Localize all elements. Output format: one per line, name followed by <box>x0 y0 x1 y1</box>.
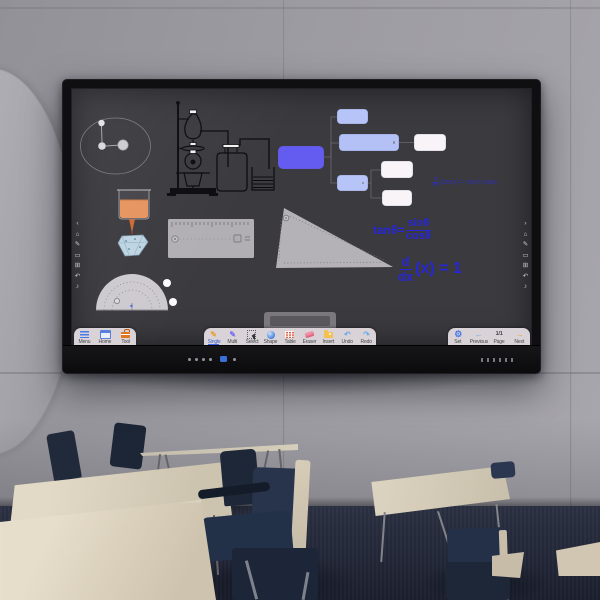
dock-item-page[interactable]: 1/1 Page <box>489 329 510 345</box>
dock-item-set[interactable]: ⚙ Set <box>448 329 469 345</box>
usb-port-icon <box>220 356 227 362</box>
mindmap-node-blue[interactable] <box>337 109 368 124</box>
tan-identity-formula: tanθ= sinθ cosθ <box>373 218 431 242</box>
tv-bottom-bezel <box>63 345 540 373</box>
right-side-toolbar: › ⌂ ✎ ▭ ⊞ ↶ ♪ <box>520 221 531 291</box>
page-indicator: 1/1 <box>496 331 503 339</box>
beaker-drawing <box>117 190 151 256</box>
bezel-port <box>481 358 483 362</box>
atom-diagram <box>81 118 151 174</box>
mindmap-node-blue[interactable] <box>339 134 399 151</box>
toolbar-label: Shape <box>264 339 278 345</box>
dock-label: Menu <box>78 339 90 345</box>
toolbar-label: Redo <box>361 339 372 345</box>
rectangle-icon[interactable]: ▭ <box>522 253 528 260</box>
main-toolbar: ✎ Single ✎ Multi Select Shape Table <box>204 328 376 345</box>
table-grid-icon <box>285 331 294 338</box>
pen-icon[interactable]: ✎ <box>523 242 528 249</box>
hamburger-menu-icon <box>80 331 89 338</box>
toolbar-label: Table <box>284 339 295 345</box>
collapse-chevron-icon[interactable]: › <box>524 221 526 228</box>
mindmap-node-root[interactable] <box>278 146 324 169</box>
wall-seam <box>538 372 600 374</box>
left-side-toolbar: ‹ ⌂ ✎ ▭ ⊞ ↶ ♪ <box>72 221 83 291</box>
previous-arrow-icon: ← <box>475 331 483 339</box>
bezel-port <box>505 358 507 362</box>
page-controls-dock: ⚙ Set ← Previous 1/1 Page → Next <box>448 328 530 345</box>
interactive-whiteboard-panel: d dx (secx) = secx·tanx tanθ= sinθ cosθ … <box>62 79 541 374</box>
toolbar-label: Insert <box>322 339 334 345</box>
system-dock: Menu Home Tool <box>74 328 136 345</box>
toolbar-item-single[interactable]: ✎ Single <box>204 329 223 345</box>
toolbar-label: Multi <box>228 339 238 345</box>
single-pen-icon: ✎ <box>210 331 217 339</box>
undo-icon[interactable]: ↶ <box>75 274 80 281</box>
distillation-apparatus <box>167 101 274 196</box>
toolbar-label: Undo <box>342 339 353 345</box>
toolbar-item-multi[interactable]: ✎ Multi <box>223 329 242 345</box>
dock-label: Set <box>455 339 462 345</box>
home-window-icon <box>100 330 111 339</box>
bezel-indicator <box>195 358 198 361</box>
x-derivative-formula: d dx (x) = 1 <box>398 255 462 283</box>
protractor-tool <box>96 274 168 310</box>
science-drawings-svg <box>72 89 531 345</box>
bezel-port <box>499 358 501 362</box>
collapse-chevron-icon[interactable]: ‹ <box>76 221 78 228</box>
dock-label: Page <box>494 339 505 345</box>
ruler-tool <box>168 219 254 258</box>
home-icon[interactable]: ⌂ <box>76 232 80 239</box>
toolbar-label: Eraser <box>302 339 316 345</box>
toolbar-item-insert[interactable]: Insert <box>319 329 338 345</box>
bezel-indicator <box>202 358 205 361</box>
toolbar-item-table[interactable]: Table <box>280 329 299 345</box>
toolbar-item-select[interactable]: Select <box>242 329 261 345</box>
wall-seam <box>0 7 600 9</box>
note-icon[interactable]: ♪ <box>524 284 527 291</box>
dock-item-home[interactable]: Home <box>95 329 116 345</box>
dock-item-next[interactable]: → Next <box>510 329 531 345</box>
bezel-port <box>487 358 489 362</box>
bezel-indicator <box>188 358 191 361</box>
wall-seam <box>0 372 62 374</box>
insert-folder-icon <box>324 332 333 338</box>
note-icon[interactable]: ♪ <box>76 284 79 291</box>
whiteboard-canvas[interactable]: d dx (secx) = secx·tanx tanθ= sinθ cosθ … <box>71 88 532 346</box>
dock-item-tool[interactable]: Tool <box>115 329 136 345</box>
apps-grid-icon[interactable]: ⊞ <box>75 263 80 270</box>
watermark-text-area <box>270 316 330 326</box>
dock-label: Tool <box>121 339 130 345</box>
rectangle-icon[interactable]: ▭ <box>74 253 80 260</box>
pen-icon[interactable]: ✎ <box>75 242 80 249</box>
toolbar-label: Single <box>207 339 220 345</box>
bezel-indicator <box>233 358 236 361</box>
mindmap-node-blue[interactable] <box>337 175 368 191</box>
dock-item-previous[interactable]: ← Previous <box>469 329 490 345</box>
chair <box>109 422 146 470</box>
shape-circle-icon <box>267 331 275 339</box>
toolbox-icon <box>121 332 130 338</box>
dock-label: Previous <box>470 339 488 345</box>
undo-icon[interactable]: ↶ <box>523 274 528 281</box>
fraction: sinθ cosθ <box>406 218 432 242</box>
toolbar-item-shape[interactable]: Shape <box>261 329 280 345</box>
bezel-port <box>511 358 513 362</box>
redo-arrow-icon: ↷ <box>363 331 370 339</box>
eraser-icon <box>304 331 314 339</box>
toolbar-item-undo[interactable]: ↶ Undo <box>338 329 357 345</box>
toolbar-item-redo[interactable]: ↷ Redo <box>357 329 376 345</box>
select-cursor-icon <box>247 330 256 339</box>
chair <box>490 461 515 479</box>
undo-arrow-icon: ↶ <box>344 331 351 339</box>
bezel-indicator <box>209 358 212 361</box>
multi-pen-icon: ✎ <box>229 331 236 339</box>
settings-gear-icon: ⚙ <box>454 331 462 339</box>
classroom-scene: d dx (secx) = secx·tanx tanθ= sinθ cosθ … <box>0 0 600 600</box>
dock-label: Next <box>515 339 525 345</box>
home-icon[interactable]: ⌂ <box>524 232 528 239</box>
apps-grid-icon[interactable]: ⊞ <box>523 263 528 270</box>
sec-derivative-formula: d dx (secx) = secx·tanx <box>432 177 497 189</box>
desk <box>492 552 524 578</box>
fraction: d dx <box>432 177 439 189</box>
dock-item-menu[interactable]: Menu <box>74 329 95 345</box>
toolbar-label: Select <box>245 339 258 345</box>
next-arrow-icon: → <box>516 331 524 339</box>
bezel-port <box>493 358 495 362</box>
mindmap-node-white[interactable] <box>414 134 446 151</box>
fraction: d dx <box>398 255 413 283</box>
toolbar-item-eraser[interactable]: Eraser <box>300 329 319 345</box>
mindmap-node-white[interactable] <box>382 190 412 206</box>
mindmap-node-white[interactable] <box>381 161 413 178</box>
dock-label: Home <box>99 339 112 345</box>
